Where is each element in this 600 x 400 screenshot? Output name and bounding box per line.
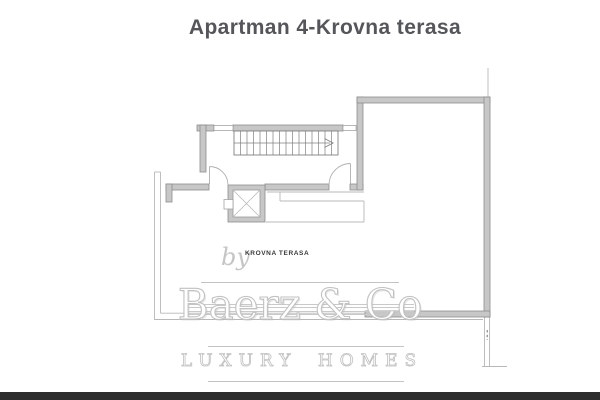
wall-hall-bottom-mid: [265, 184, 329, 190]
wall-lower-left-vertical: [166, 184, 172, 202]
wall-hall-top-mid: [233, 125, 343, 131]
window-opening-icon: [343, 126, 356, 131]
wall-hall-left: [200, 125, 206, 172]
room-label-krovna-terasa: KROVNA TERASA: [245, 250, 309, 257]
roof-step-lines: [266, 192, 364, 222]
elevator-door: [224, 200, 233, 210]
staircase-symbol: [234, 131, 338, 155]
elevator-symbol: [224, 185, 265, 222]
door-swing-right-icon: [329, 164, 351, 186]
watermark-rule-middle: [208, 346, 404, 347]
door-swing-left-icon: [210, 167, 229, 186]
doors: [210, 164, 351, 186]
floor-plan-page: Apartman 4-Krovna terasa: [0, 0, 600, 400]
wall-hall-right: [357, 97, 363, 190]
watermark-tagline-text: LUXURY HOMES: [0, 353, 600, 370]
window-opening-icon: [214, 126, 233, 131]
floor-plan-drawing: [0, 0, 600, 400]
wall-upper-horizontal: [357, 97, 490, 103]
watermark-rule-bottom: [208, 381, 404, 382]
bottom-bar: [0, 392, 600, 400]
wall-lower-left-horizontal: [166, 184, 209, 190]
watermark-brand-text: Baerz & Co: [0, 284, 600, 326]
watermark-by-text: by: [221, 243, 250, 271]
